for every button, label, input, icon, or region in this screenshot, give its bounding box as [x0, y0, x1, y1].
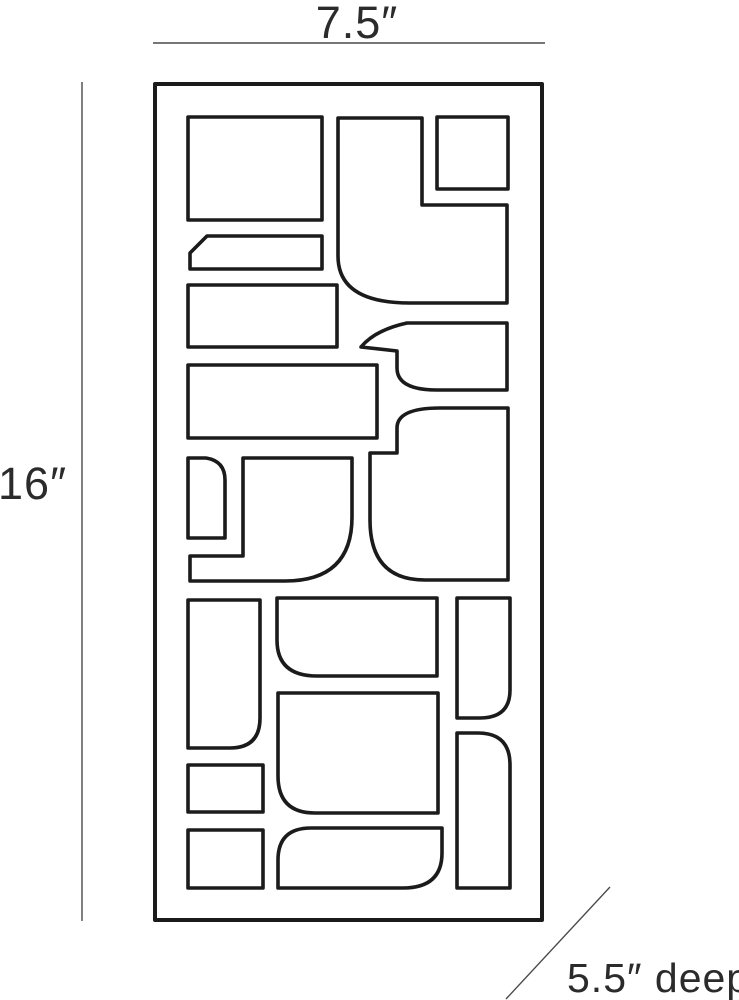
- depth-dimension-label: 5.5″ deep: [567, 955, 739, 1000]
- cutout-middle-left-rect: [188, 365, 377, 438]
- cutout-lower-left-rect: [188, 600, 260, 748]
- height-dimension-label: 16″: [0, 458, 67, 509]
- cutout-bottom-center-rect: [278, 693, 438, 813]
- cutout-upper-left-bar: [188, 285, 337, 347]
- cutout-lower-right-lower: [457, 733, 510, 888]
- width-dimension-label: 7.5″: [316, 0, 399, 48]
- dimension-drawing: 7.5″ 16″ 5.5″ deep: [0, 0, 739, 1000]
- cutout-top-left-rect: [188, 117, 322, 220]
- panel-dimension-diagram: 7.5″ 16″ 5.5″ deep: [0, 0, 739, 1000]
- cutout-bottom-center-rounded: [278, 828, 442, 888]
- cutout-lower-right-upper: [457, 598, 510, 718]
- cutout-left-small-chamfer: [188, 458, 225, 538]
- cutout-bottom-left-rect-1: [188, 765, 263, 812]
- cutout-top-right-square: [437, 117, 508, 189]
- cutout-chamfered-bar: [190, 236, 322, 269]
- cutout-lower-center-rect: [277, 598, 437, 676]
- cutout-bottom-left-rect-2: [188, 830, 263, 888]
